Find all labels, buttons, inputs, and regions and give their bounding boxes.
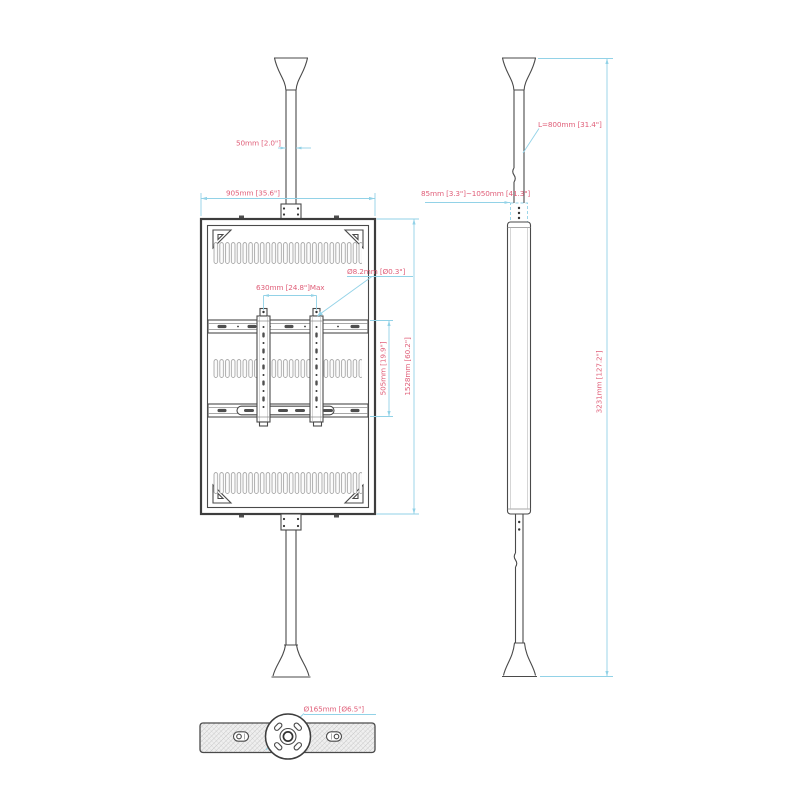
- dim-frame-height-label: 1528mm [60.2"]: [403, 337, 412, 396]
- dim-bracket-span-label: 630mm [24.8"]Max: [256, 283, 325, 292]
- side-floor-flange: [502, 643, 537, 677]
- dim-pole-width-label: 50mm [2.0"]: [236, 139, 281, 148]
- base-bar-slot-right: [327, 732, 342, 741]
- mount-technical-drawing: 50mm [2.0"] 905mm [35.6"] 630mm [24.8"]M…: [0, 0, 810, 810]
- dim-pole-length-label: L=800mm [31.4"]: [538, 120, 602, 129]
- floor-flange-plate: [266, 714, 311, 759]
- side-lower-pole: [514, 514, 523, 643]
- dim-frame-width-label: 905mm [35.6"]: [226, 189, 280, 198]
- dim-hole-diameter-label: Ø8.2mm [Ø0.3"]: [347, 267, 405, 276]
- front-top-connector: [281, 204, 301, 219]
- front-bottom-connector: [281, 514, 301, 530]
- vent-band-middle: [213, 359, 362, 378]
- front-lower-pole: [286, 530, 296, 643]
- vent-band-bottom: [213, 472, 362, 494]
- vesa-bracket-left: [257, 309, 270, 427]
- dim-adjustment-range-label: 85mm [3.3"]~1050mm [41.3"]: [421, 189, 530, 198]
- front-upper-pole: [286, 90, 296, 204]
- side-column: [508, 222, 531, 514]
- vent-band-top: [213, 242, 362, 264]
- side-view: L=800mm [31.4"] 85mm [3.3"]~1050mm [41.3…: [421, 58, 613, 677]
- front-floor-flange: [272, 643, 311, 677]
- side-upper-pole: [513, 90, 524, 203]
- bottom-rail: [208, 404, 368, 417]
- dim-rail-height-label: 505mm [19.9"]: [379, 341, 388, 395]
- dim-total-height-label: 3231mm [127.2"]: [595, 350, 604, 413]
- front-view: 50mm [2.0"] 905mm [35.6"] 630mm [24.8"]M…: [201, 58, 419, 677]
- side-ceiling-flange: [502, 58, 536, 90]
- top-rail: [208, 320, 368, 333]
- bottom-view: Ø165mm [Ø6.5"]: [200, 705, 376, 760]
- base-bar-slot-left: [234, 732, 249, 741]
- dim-flange-diameter-label: Ø165mm [Ø6.5"]: [304, 705, 365, 714]
- front-ceiling-flange: [274, 58, 308, 90]
- vesa-bracket-right: [310, 309, 323, 427]
